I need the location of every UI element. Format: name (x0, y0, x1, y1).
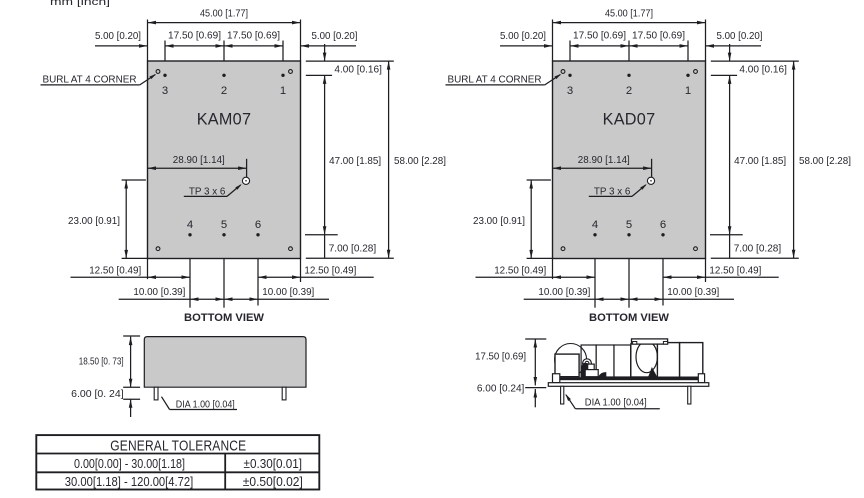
svg-text:7.00 [0.28]: 7.00 [0.28] (329, 244, 377, 255)
svg-text:BOTTOM VIEW: BOTTOM VIEW (589, 312, 670, 324)
svg-text:10.00 [0.39]: 10.00 [0.39] (667, 287, 719, 298)
svg-text:17.50 [0.69]: 17.50 [0.69] (227, 31, 280, 42)
svg-text:10.00 [0.39]: 10.00 [0.39] (262, 287, 314, 298)
svg-text:23.00 [0.91]: 23.00 [0.91] (473, 216, 525, 227)
svg-text:12.50 [0.49]: 12.50 [0.49] (494, 265, 546, 276)
svg-text:GENERAL TOLERANCE: GENERAL TOLERANCE (110, 438, 246, 454)
svg-text:47.00 [1.85]: 47.00 [1.85] (329, 156, 381, 167)
svg-text:1: 1 (280, 85, 286, 97)
svg-text:2: 2 (221, 85, 227, 97)
svg-text:4: 4 (592, 219, 598, 231)
svg-text:DIA 1.00 [0.04]: DIA 1.00 [0.04] (585, 397, 647, 408)
svg-text:6: 6 (255, 219, 261, 231)
svg-text:18.50 [0. 73]: 18.50 [0. 73] (79, 356, 124, 367)
svg-text:58.00 [2.28]: 58.00 [2.28] (799, 156, 851, 167)
svg-text:4: 4 (187, 219, 193, 231)
svg-text:7.00 [0.28]: 7.00 [0.28] (734, 244, 782, 255)
svg-text:23.00 [0.91]: 23.00 [0.91] (68, 216, 120, 227)
svg-text:10.00 [0.39]: 10.00 [0.39] (538, 287, 590, 298)
svg-text:6: 6 (660, 219, 666, 231)
svg-text:1: 1 (685, 85, 691, 97)
svg-text:BURL AT 4 CORNER: BURL AT 4 CORNER (448, 74, 542, 85)
svg-text:5: 5 (221, 219, 227, 231)
svg-text:4.00 [0.16]: 4.00 [0.16] (739, 65, 787, 76)
svg-text:12.50 [0.49]: 12.50 [0.49] (304, 265, 356, 276)
svg-text:30.00[1.18] - 120.00[4.72]: 30.00[1.18] - 120.00[4.72] (65, 475, 194, 489)
svg-text:5.00 [0.20]: 5.00 [0.20] (95, 31, 141, 42)
svg-text:3: 3 (162, 85, 168, 97)
svg-text:10.00 [0.39]: 10.00 [0.39] (133, 287, 185, 298)
svg-text:5.00 [0.20]: 5.00 [0.20] (500, 31, 546, 42)
svg-text:12.50 [0.49]: 12.50 [0.49] (89, 265, 141, 276)
svg-text:4.00 [0.16]: 4.00 [0.16] (334, 65, 382, 76)
svg-text:6.00 [0.24]: 6.00 [0.24] (477, 383, 525, 394)
svg-text:KAM07: KAM07 (197, 111, 252, 129)
svg-text:DIA 1.00 [0.04]: DIA 1.00 [0.04] (176, 400, 235, 411)
svg-text:45.00 [1.77]: 45.00 [1.77] (605, 8, 653, 19)
svg-text:17.50 [0.69]: 17.50 [0.69] (168, 31, 221, 42)
svg-text:TP 3 x 6: TP 3 x 6 (189, 186, 226, 197)
svg-text:mm [inch]: mm [inch] (50, 0, 110, 8)
svg-text:58.00 [2.28]: 58.00 [2.28] (394, 156, 446, 167)
svg-text:5: 5 (626, 219, 632, 231)
svg-text:12.50 [0.49]: 12.50 [0.49] (709, 265, 761, 276)
svg-text:47.00 [1.85]: 47.00 [1.85] (734, 156, 786, 167)
svg-text:BURL AT 4 CORNER: BURL AT 4 CORNER (43, 74, 137, 85)
svg-text:17.50 [0.69]: 17.50 [0.69] (573, 31, 626, 42)
svg-text:5.00 [0.20]: 5.00 [0.20] (717, 31, 763, 42)
svg-text:17.50 [0.69]: 17.50 [0.69] (632, 31, 685, 42)
svg-text:2: 2 (626, 85, 632, 97)
svg-text:17.50 [0.69]: 17.50 [0.69] (475, 352, 526, 363)
svg-text:45.00 [1.77]: 45.00 [1.77] (200, 8, 248, 19)
svg-text:0.00[0.00] - 30.00[1.18]: 0.00[0.00] - 30.00[1.18] (74, 457, 185, 471)
svg-text:3: 3 (567, 85, 573, 97)
svg-text:28.90 [1.14]: 28.90 [1.14] (173, 155, 225, 166)
svg-text:BOTTOM VIEW: BOTTOM VIEW (184, 312, 265, 324)
svg-text:±0.50[0.02]: ±0.50[0.02] (243, 475, 303, 489)
svg-text:5.00 [0.20]: 5.00 [0.20] (312, 31, 358, 42)
svg-text:6.00 [0. 24]: 6.00 [0. 24] (71, 389, 124, 400)
svg-text:28.90 [1.14]: 28.90 [1.14] (578, 155, 630, 166)
svg-text:±0.30[0.01]: ±0.30[0.01] (244, 457, 303, 471)
svg-text:KAD07: KAD07 (603, 111, 656, 129)
svg-text:TP 3 x 6: TP 3 x 6 (594, 186, 631, 197)
